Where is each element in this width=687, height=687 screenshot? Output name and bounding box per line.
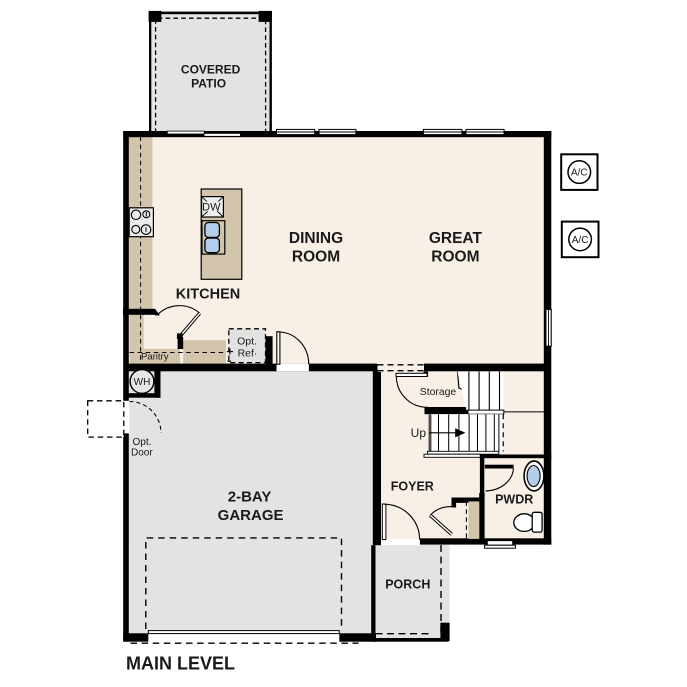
svg-text:GARAGE: GARAGE [218, 507, 284, 524]
svg-text:Door: Door [131, 448, 153, 459]
svg-text:PORCH: PORCH [385, 577, 430, 591]
svg-text:ROOM: ROOM [431, 249, 479, 266]
svg-text:Storage: Storage [420, 387, 457, 398]
svg-text:DINING: DINING [289, 230, 343, 247]
svg-text:2-BAY: 2-BAY [228, 489, 272, 506]
svg-text:COVERED: COVERED [181, 63, 241, 77]
svg-text:Up: Up [411, 426, 427, 440]
svg-text:PWDR: PWDR [495, 493, 533, 507]
svg-text:GREAT: GREAT [429, 230, 483, 247]
svg-text:A/C: A/C [572, 235, 589, 246]
svg-text:A/C: A/C [571, 168, 588, 179]
svg-text:Opt.: Opt. [237, 336, 257, 348]
svg-text:KITCHEN: KITCHEN [176, 287, 240, 303]
svg-text:Ref·: Ref· [238, 348, 258, 360]
svg-text:Opt.: Opt. [133, 437, 152, 448]
svg-text:Pantry: Pantry [141, 352, 169, 363]
svg-text:MAIN LEVEL: MAIN LEVEL [126, 654, 235, 674]
svg-text:WH: WH [134, 377, 151, 388]
svg-text:FOYER: FOYER [391, 480, 434, 494]
svg-text:PATIO: PATIO [191, 77, 226, 91]
svg-text:DW: DW [202, 201, 221, 213]
svg-text:ROOM: ROOM [292, 249, 340, 266]
